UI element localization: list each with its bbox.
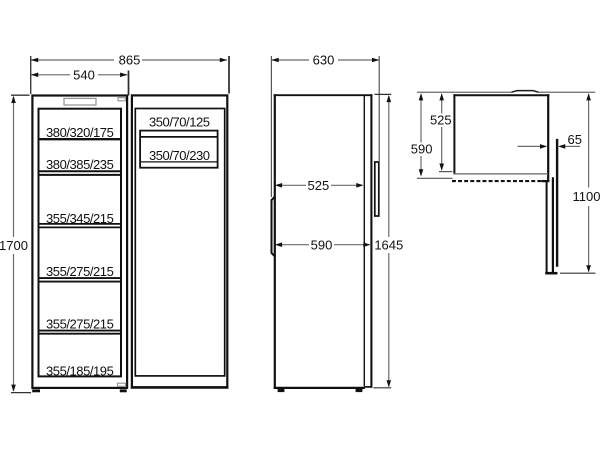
svg-text:525: 525 xyxy=(308,178,330,193)
svg-text:1700: 1700 xyxy=(0,238,28,253)
svg-text:355/185/195: 355/185/195 xyxy=(46,363,114,378)
svg-text:355/275/215: 355/275/215 xyxy=(46,264,114,279)
svg-text:1100: 1100 xyxy=(573,189,600,204)
svg-text:350/70/230: 350/70/230 xyxy=(149,148,210,163)
svg-text:380/385/235: 380/385/235 xyxy=(46,157,114,172)
svg-text:525: 525 xyxy=(430,113,452,128)
svg-text:380/320/175: 380/320/175 xyxy=(46,125,114,140)
svg-text:590: 590 xyxy=(411,142,433,157)
svg-text:630: 630 xyxy=(313,53,335,68)
svg-text:590: 590 xyxy=(311,237,333,252)
svg-text:1645: 1645 xyxy=(374,237,403,252)
svg-text:540: 540 xyxy=(73,68,95,83)
svg-text:355/275/215: 355/275/215 xyxy=(46,317,114,332)
svg-text:65: 65 xyxy=(568,132,582,147)
svg-text:865: 865 xyxy=(119,53,141,68)
svg-text:350/70/125: 350/70/125 xyxy=(149,115,210,130)
